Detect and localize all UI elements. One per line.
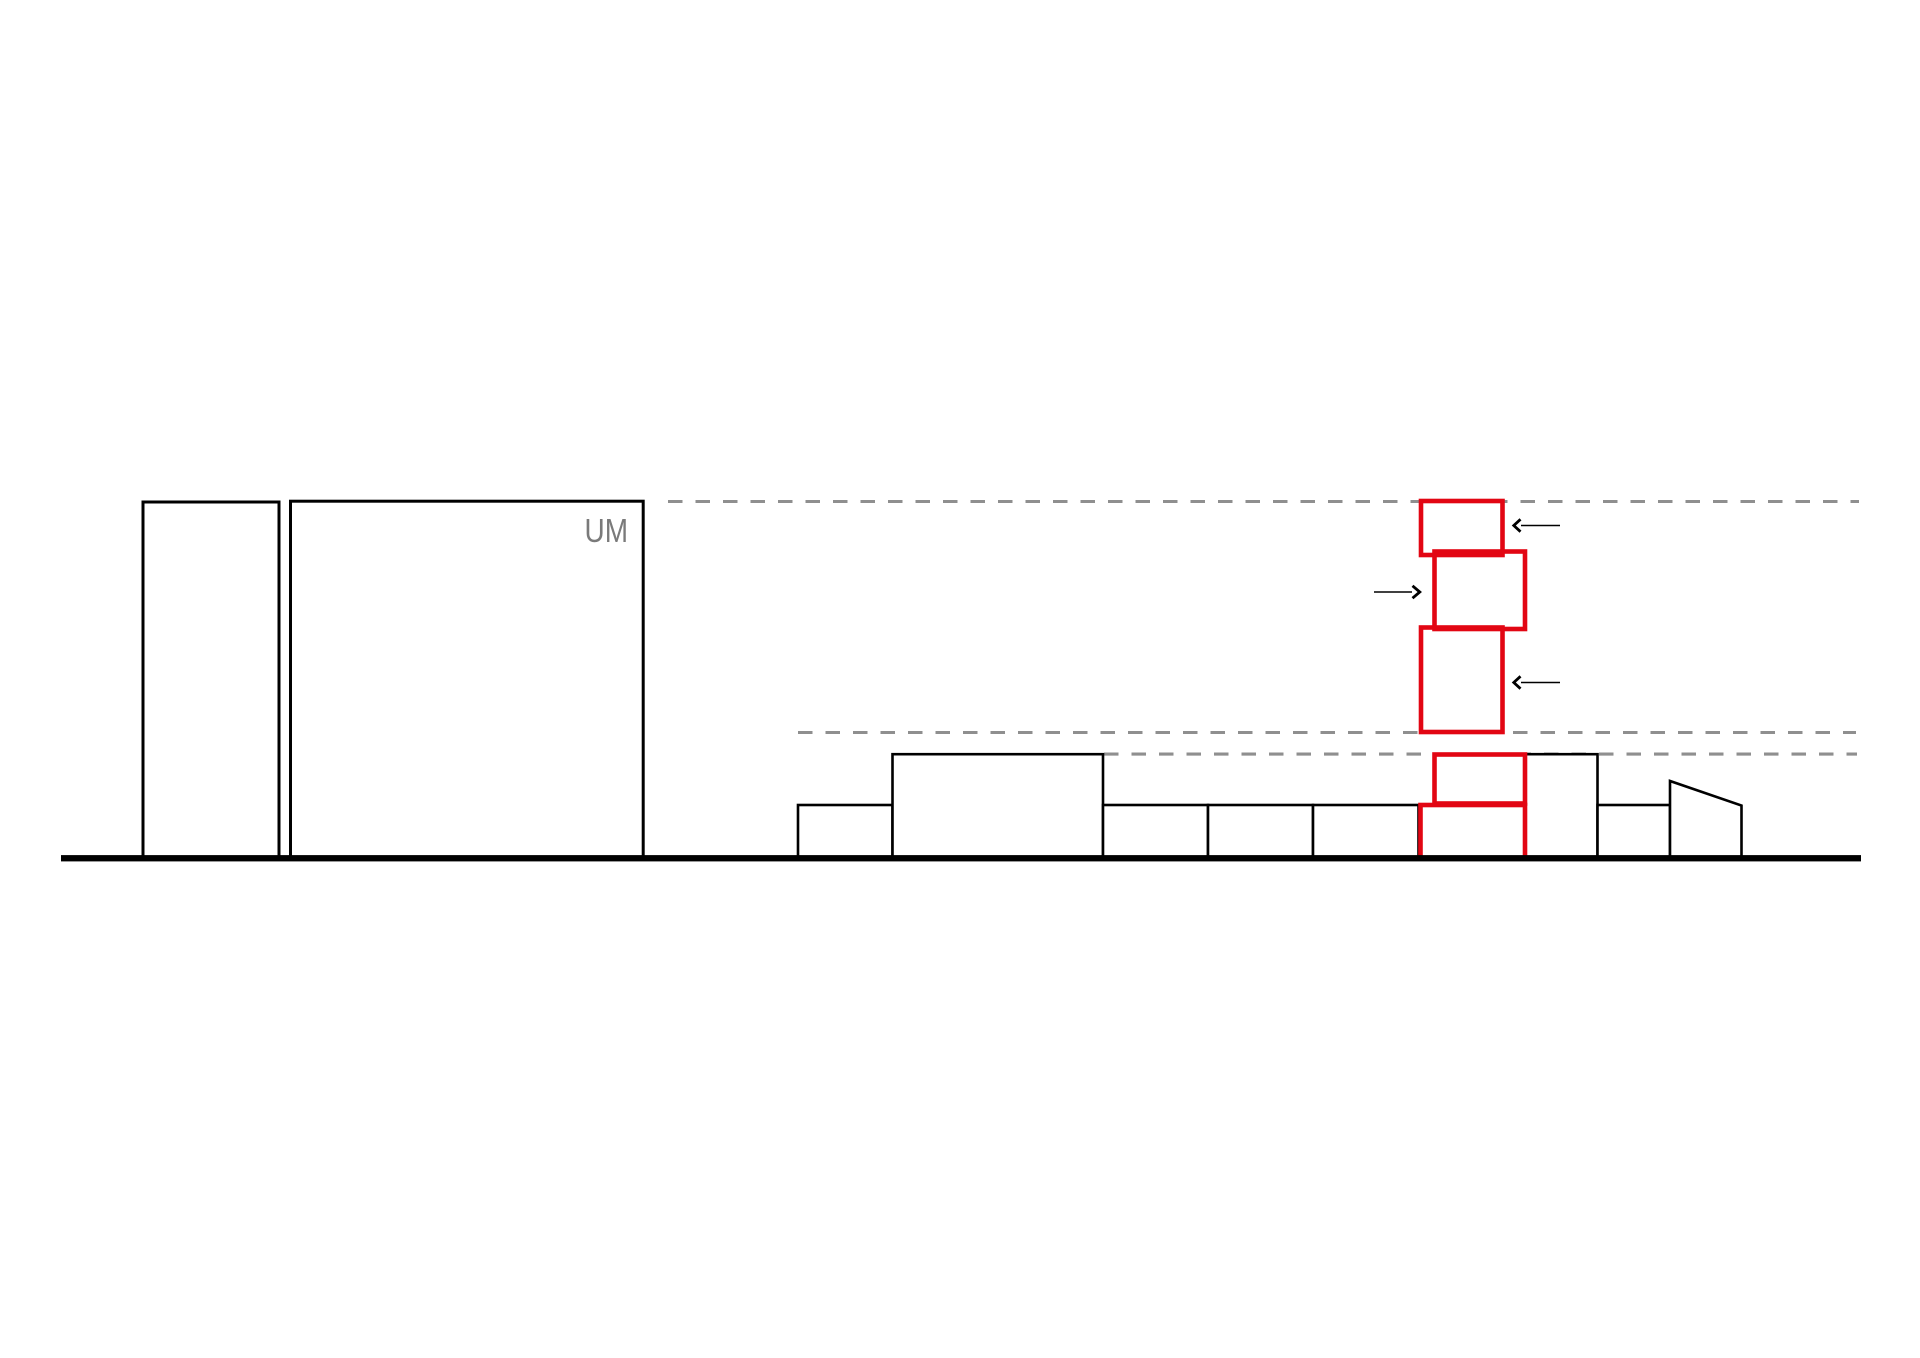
svg-text:UM: UM [585, 513, 629, 550]
